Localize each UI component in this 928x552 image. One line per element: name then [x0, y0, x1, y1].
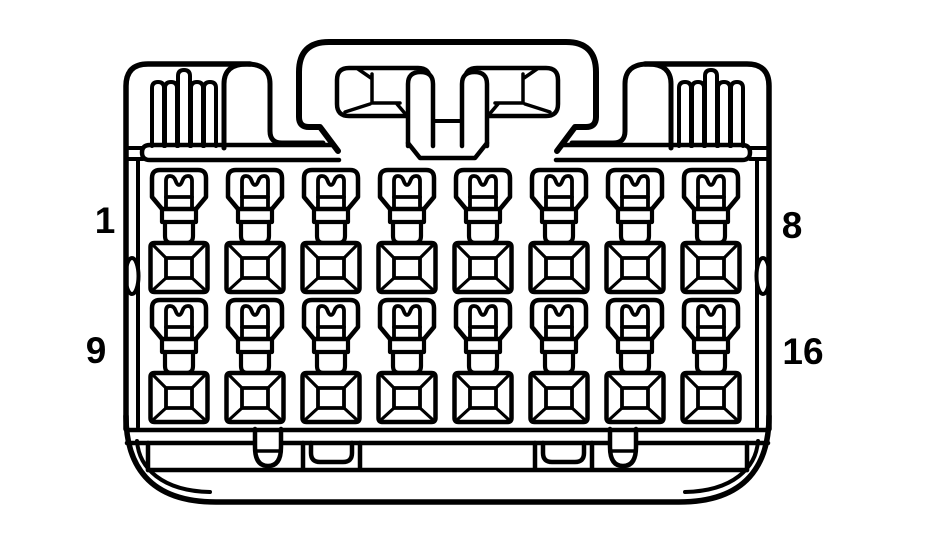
- pin-9: [151, 300, 208, 422]
- pin-12: [379, 300, 436, 422]
- rail-right: [556, 145, 750, 160]
- dome-right: [572, 64, 671, 148]
- pin-10: [227, 300, 284, 422]
- pin-label-16: 16: [782, 331, 823, 372]
- pin-2: [227, 170, 284, 292]
- pin-8: [683, 170, 740, 292]
- pin-3: [303, 170, 360, 292]
- pin-label-8: 8: [782, 205, 803, 246]
- base-peg-right: [610, 429, 636, 466]
- ribs-left: [152, 70, 216, 146]
- pin-7: [607, 170, 664, 292]
- pin-label-9: 9: [86, 330, 107, 371]
- connector-diagram: 1 8 9 16: [0, 0, 928, 552]
- base-slot-left: [311, 443, 352, 462]
- rib-tall-right: [705, 70, 717, 146]
- ribs-right: [679, 70, 743, 146]
- pin-5: [455, 170, 512, 292]
- connector-base: [126, 416, 769, 502]
- pin-15: [607, 300, 664, 422]
- base-skirt-inner-arcs: [137, 441, 758, 492]
- pin-4: [379, 170, 436, 292]
- pin-label-1: 1: [95, 200, 116, 241]
- latch-channel-wall-right: [462, 72, 487, 146]
- base-slot-right: [543, 443, 584, 462]
- dome-left: [224, 64, 323, 148]
- rib-tall-left: [178, 70, 190, 146]
- rail-left: [142, 145, 339, 160]
- latch-channel-wall-left: [408, 72, 433, 146]
- pin-1: [151, 170, 208, 292]
- pin-6: [531, 170, 588, 292]
- pin-13: [455, 300, 512, 422]
- latch: [299, 42, 596, 158]
- pin-grid: [151, 170, 740, 422]
- base-inner-walls: [148, 443, 747, 470]
- pin-16: [683, 300, 740, 422]
- pin-11: [303, 300, 360, 422]
- pin-14: [531, 300, 588, 422]
- connector-diagram-figure: 1 8 9 16: [0, 0, 928, 552]
- base-peg-left: [255, 429, 281, 466]
